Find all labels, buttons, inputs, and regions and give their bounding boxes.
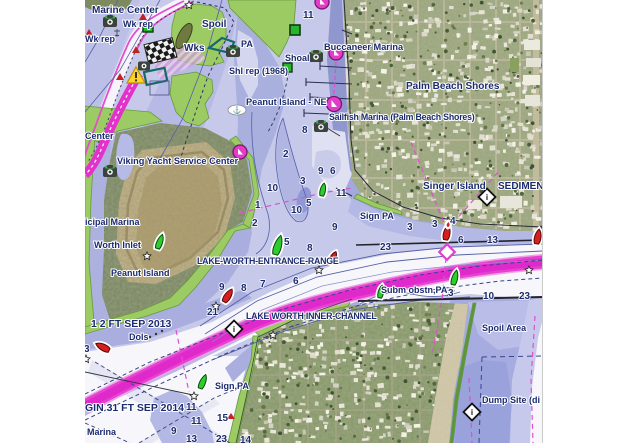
svg-text:8: 8 bbox=[307, 243, 313, 254]
svg-text:7: 7 bbox=[260, 279, 266, 290]
svg-text:Center: Center bbox=[85, 131, 114, 141]
svg-text:15: 15 bbox=[217, 413, 229, 424]
svg-text:Wks: Wks bbox=[184, 43, 205, 54]
svg-text:3: 3 bbox=[432, 219, 438, 230]
svg-text:Dump Site (di: Dump Site (di bbox=[482, 395, 540, 405]
svg-text:2: 2 bbox=[252, 218, 258, 229]
svg-text:21: 21 bbox=[207, 307, 219, 318]
svg-text:8: 8 bbox=[241, 283, 247, 294]
svg-text:Sign,PA: Sign,PA bbox=[215, 381, 249, 391]
svg-text:Dols: Dols bbox=[129, 332, 149, 342]
svg-text:i: i bbox=[486, 193, 488, 202]
svg-text:Marine Center: Marine Center bbox=[92, 5, 159, 16]
svg-text:icipal Marina: icipal Marina bbox=[85, 217, 141, 227]
svg-text:Spoil Area: Spoil Area bbox=[482, 323, 527, 333]
svg-text:Singer Island: Singer Island bbox=[423, 181, 486, 192]
svg-text:9: 9 bbox=[219, 282, 225, 293]
svg-text:9: 9 bbox=[171, 426, 177, 437]
svg-text:5: 5 bbox=[284, 237, 290, 248]
svg-text:4: 4 bbox=[450, 216, 456, 227]
svg-text:Peanut Island: Peanut Island bbox=[111, 268, 170, 278]
svg-text:11: 11 bbox=[336, 188, 347, 199]
svg-text:10: 10 bbox=[267, 183, 279, 194]
svg-text:⚓: ⚓ bbox=[233, 106, 242, 115]
svg-text:Buccaneer Marina: Buccaneer Marina bbox=[324, 42, 404, 52]
svg-text:11: 11 bbox=[191, 416, 202, 427]
svg-text:Sailfish Marina (Palm Beach Sh: Sailfish Marina (Palm Beach Shores) bbox=[329, 112, 475, 122]
svg-text:SEDIMENT: SEDIMENT bbox=[498, 181, 550, 192]
svg-text:Spoil: Spoil bbox=[202, 19, 227, 30]
svg-text:1 2 FT SEP 2013: 1 2 FT SEP 2013 bbox=[91, 318, 172, 330]
svg-text:GIN 31 FT SEP 2014: GIN 31 FT SEP 2014 bbox=[85, 402, 184, 414]
svg-text:6: 6 bbox=[458, 235, 464, 246]
svg-text:1: 1 bbox=[255, 200, 261, 211]
svg-text:LAKE WORTH INNER-CHANNEL: LAKE WORTH INNER-CHANNEL bbox=[246, 311, 377, 321]
svg-text:11: 11 bbox=[303, 10, 314, 21]
svg-text:Palm Beach Shores: Palm Beach Shores bbox=[406, 81, 500, 92]
svg-text:10: 10 bbox=[483, 291, 495, 302]
svg-text:PA: PA bbox=[241, 39, 253, 49]
svg-text:Shl rep (1968): Shl rep (1968) bbox=[229, 66, 288, 76]
svg-text:Marina: Marina bbox=[87, 427, 117, 437]
svg-text:10: 10 bbox=[291, 205, 303, 216]
svg-text:Shoal: Shoal bbox=[285, 53, 310, 63]
svg-text:Sign PA: Sign PA bbox=[360, 211, 394, 221]
svg-text:3: 3 bbox=[407, 222, 413, 233]
svg-text:6: 6 bbox=[330, 166, 336, 177]
svg-text:14: 14 bbox=[240, 435, 252, 443]
svg-text:9: 9 bbox=[332, 222, 338, 233]
svg-text:23: 23 bbox=[519, 291, 531, 302]
svg-text:Wk rep: Wk rep bbox=[123, 19, 154, 29]
svg-text:3: 3 bbox=[448, 288, 454, 299]
svg-text:6: 6 bbox=[293, 276, 299, 287]
svg-text:2: 2 bbox=[283, 149, 289, 160]
svg-text:Viking Yacht Service Center: Viking Yacht Service Center bbox=[117, 156, 239, 166]
svg-text:i: i bbox=[471, 408, 473, 417]
svg-text:9: 9 bbox=[318, 166, 324, 177]
svg-text:23: 23 bbox=[380, 242, 392, 253]
svg-text:13: 13 bbox=[487, 235, 499, 246]
svg-text:Peanut Island - NE: Peanut Island - NE bbox=[246, 97, 327, 107]
svg-text:i: i bbox=[233, 325, 235, 334]
svg-text:8: 8 bbox=[302, 125, 308, 136]
svg-text:Wk rep: Wk rep bbox=[85, 34, 116, 44]
svg-text:3: 3 bbox=[300, 176, 306, 187]
svg-text:Worth Inlet: Worth Inlet bbox=[94, 240, 141, 250]
svg-text:5: 5 bbox=[306, 198, 312, 209]
svg-text:Subm obstn,PA: Subm obstn,PA bbox=[381, 285, 448, 295]
svg-text:13: 13 bbox=[186, 434, 198, 443]
svg-text:11: 11 bbox=[186, 402, 197, 413]
svg-text:LAKE-WORTH-ENTRANCE-RANGE: LAKE-WORTH-ENTRANCE-RANGE bbox=[197, 256, 339, 266]
svg-text:23: 23 bbox=[216, 434, 228, 443]
